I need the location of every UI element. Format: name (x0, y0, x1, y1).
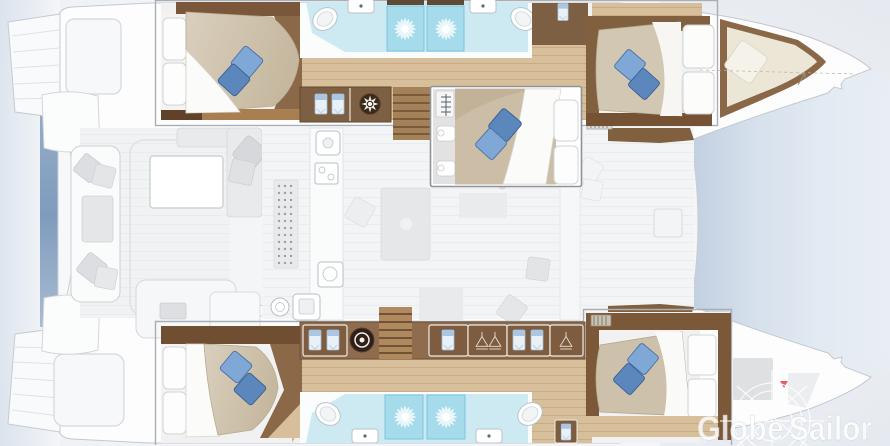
svg-text:Sailor: Sailor (789, 410, 872, 446)
svg-text:Globe: Globe (697, 410, 784, 446)
